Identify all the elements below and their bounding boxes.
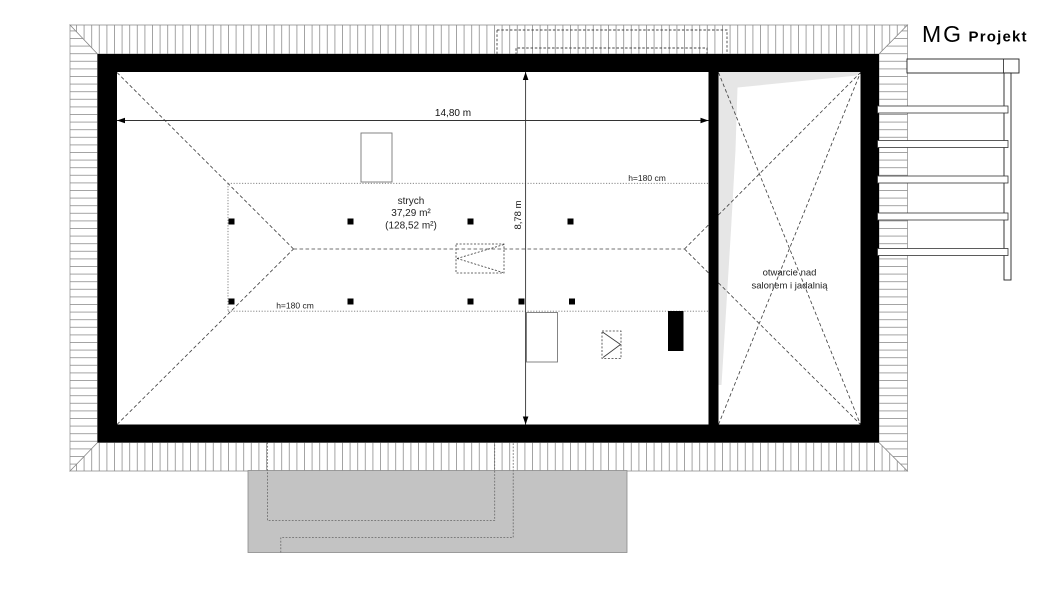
svg-text:37,29 m²: 37,29 m² [391, 208, 431, 219]
svg-text:8,78 m: 8,78 m [513, 200, 524, 229]
svg-text:h=180 cm: h=180 cm [276, 301, 314, 311]
svg-text:h=180 cm: h=180 cm [628, 173, 666, 183]
svg-text:otwarcie nad: otwarcie nad [763, 268, 817, 279]
svg-text:strych: strych [398, 196, 425, 207]
svg-text:Projekt: Projekt [969, 29, 1028, 46]
svg-text:salonem i jadalnią: salonem i jadalnią [751, 281, 828, 292]
svg-text:14,80 m: 14,80 m [435, 108, 471, 119]
svg-text:(128,52 m²): (128,52 m²) [385, 221, 437, 232]
svg-text:MG: MG [922, 21, 963, 47]
